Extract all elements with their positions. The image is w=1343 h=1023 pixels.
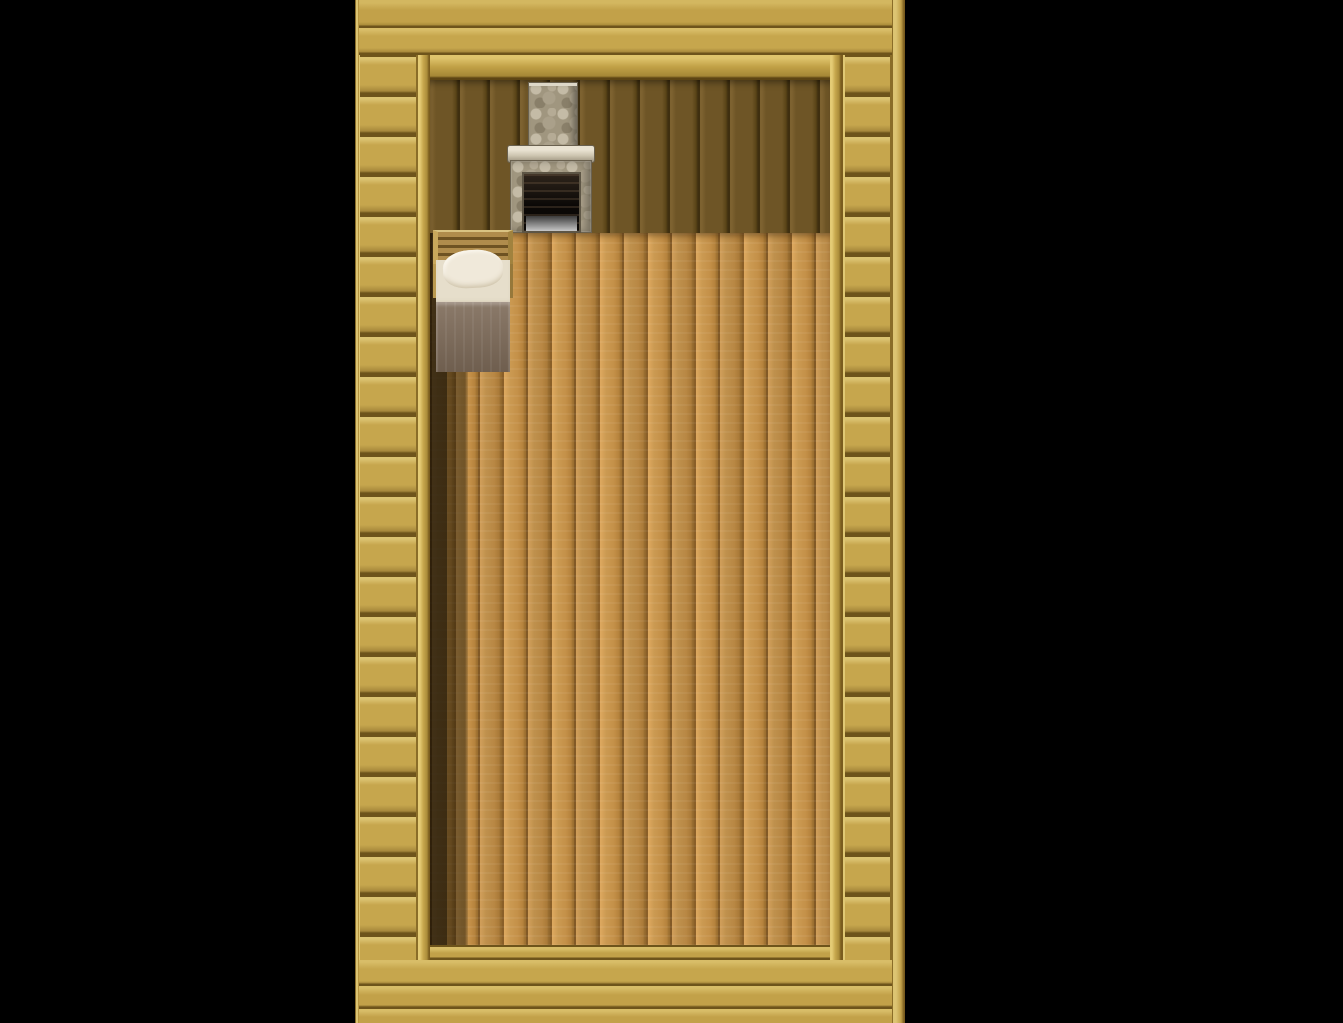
bed-blanket xyxy=(436,302,510,372)
bed-blanket-fringe xyxy=(436,370,510,385)
game-screen[interactable] xyxy=(0,0,1343,1023)
viewport-right-edge xyxy=(892,0,905,1023)
left-wall-column xyxy=(358,55,418,960)
north-wall-header-beam xyxy=(430,55,830,80)
fireplace[interactable] xyxy=(505,82,597,233)
right-wall-beam xyxy=(830,55,843,960)
fireplace-opening xyxy=(522,172,581,233)
left-wall-beam xyxy=(418,55,430,960)
north-wall-paneling xyxy=(430,80,830,233)
fireplace-hearth-floor xyxy=(526,216,577,231)
bed-pillow xyxy=(442,248,504,289)
bed[interactable] xyxy=(433,230,513,388)
right-wall-column xyxy=(843,55,892,960)
fireplace-chimney xyxy=(528,82,578,152)
viewport-left-edge xyxy=(355,0,359,1023)
game-map-viewport[interactable] xyxy=(355,0,905,1023)
bottom-wall-planks xyxy=(355,945,905,1023)
top-wall-planks xyxy=(355,0,905,55)
